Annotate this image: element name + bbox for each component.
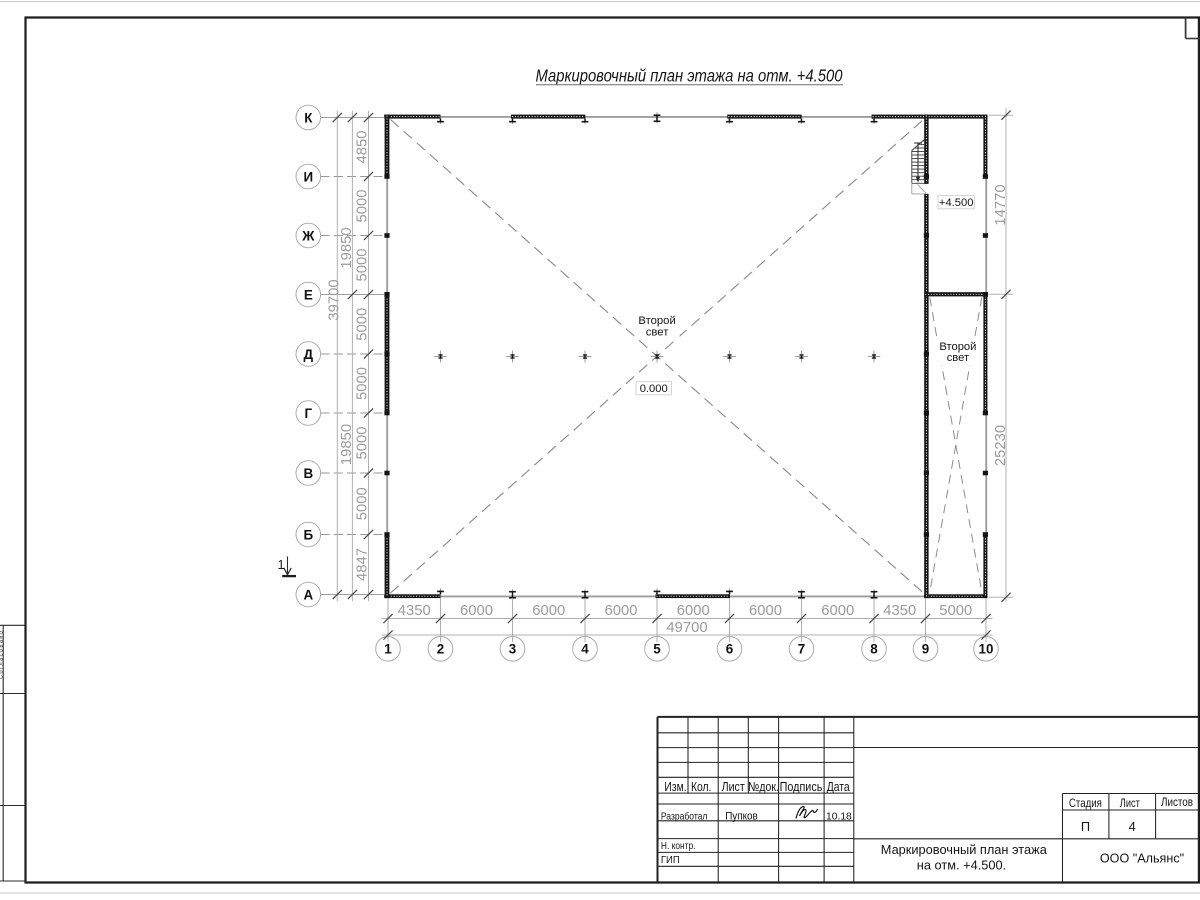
svg-text:Второй: Второй [638, 315, 675, 327]
svg-text:Разработал: Разработал [661, 811, 708, 823]
svg-text:4850: 4850 [354, 131, 370, 164]
svg-text:6000: 6000 [460, 603, 493, 619]
svg-text:6000: 6000 [532, 603, 565, 619]
svg-text:5000: 5000 [354, 427, 370, 460]
svg-text:4: 4 [581, 642, 589, 657]
svg-text:25230: 25230 [993, 425, 1009, 466]
svg-text:Подпись: Подпись [780, 779, 823, 794]
svg-text:Второй: Второй [939, 341, 976, 353]
svg-text:5000: 5000 [354, 367, 370, 400]
svg-text:Е: Е [304, 287, 313, 302]
svg-text:39700: 39700 [327, 279, 343, 320]
svg-text:19850: 19850 [339, 424, 355, 465]
svg-text:Согласовано: Согласовано [0, 631, 5, 679]
svg-text:10.18: 10.18 [826, 811, 852, 822]
svg-text:6000: 6000 [605, 603, 638, 619]
svg-text:А: А [303, 587, 313, 602]
svg-text:Стадия: Стадия [1069, 796, 1102, 810]
svg-text:Ж: Ж [301, 228, 315, 243]
svg-text:1: 1 [277, 557, 284, 572]
svg-text:1: 1 [384, 642, 392, 657]
svg-text:5000: 5000 [354, 249, 370, 282]
svg-text:+4.500: +4.500 [939, 197, 974, 209]
svg-text:5000: 5000 [354, 308, 370, 341]
svg-text:ООО "Альянс": ООО "Альянс" [1100, 851, 1184, 865]
svg-text:4350: 4350 [398, 603, 431, 619]
svg-text:свет: свет [947, 352, 969, 364]
svg-text:Кол.: Кол. [691, 779, 712, 794]
svg-text:Листов: Листов [1161, 795, 1193, 809]
svg-text:Дата: Дата [827, 779, 851, 794]
svg-text:Лист: Лист [1120, 796, 1140, 810]
svg-text:4: 4 [1129, 819, 1136, 834]
svg-text:8: 8 [870, 642, 878, 657]
svg-text:Б: Б [303, 527, 313, 542]
svg-text:14770: 14770 [993, 184, 1009, 225]
svg-text:7: 7 [798, 642, 805, 657]
svg-text:К: К [304, 110, 313, 125]
svg-text:Маркировочный план этажа на от: Маркировочный план этажа на отм. +4.500 [536, 66, 843, 86]
svg-text:Г: Г [305, 406, 313, 421]
svg-text:5000: 5000 [354, 190, 370, 223]
svg-text:свет: свет [646, 327, 669, 339]
svg-text:19850: 19850 [339, 227, 355, 268]
svg-text:6000: 6000 [749, 603, 782, 619]
svg-text:6000: 6000 [821, 603, 854, 619]
svg-text:В: В [303, 466, 313, 481]
svg-text:5000: 5000 [354, 487, 370, 520]
svg-text:Изм.: Изм. [664, 779, 686, 794]
svg-text:49700: 49700 [666, 620, 707, 636]
svg-text:5: 5 [653, 642, 661, 657]
svg-text:2: 2 [437, 642, 444, 657]
svg-text:3: 3 [509, 642, 516, 657]
svg-text:ГИП: ГИП [661, 855, 680, 866]
svg-text:№док.: №док. [748, 779, 779, 794]
svg-text:И: И [303, 169, 313, 184]
svg-text:на отм. +4.500.: на отм. +4.500. [917, 857, 1006, 872]
svg-text:Д: Д [304, 347, 314, 362]
svg-text:Лист: Лист [722, 779, 745, 794]
svg-text:10: 10 [979, 642, 994, 657]
svg-text:П: П [1081, 819, 1090, 834]
svg-text:Н. контр.: Н. контр. [661, 841, 696, 852]
svg-text:4847: 4847 [354, 548, 370, 581]
svg-text:5000: 5000 [939, 603, 972, 619]
svg-text:6: 6 [726, 642, 733, 657]
svg-text:Пупков: Пупков [725, 810, 758, 822]
svg-text:Маркировочный план этажа: Маркировочный план этажа [881, 842, 1048, 857]
svg-text:6000: 6000 [677, 603, 710, 619]
svg-text:9: 9 [922, 642, 929, 657]
svg-text:0.000: 0.000 [640, 383, 668, 395]
svg-text:4350: 4350 [883, 603, 916, 619]
